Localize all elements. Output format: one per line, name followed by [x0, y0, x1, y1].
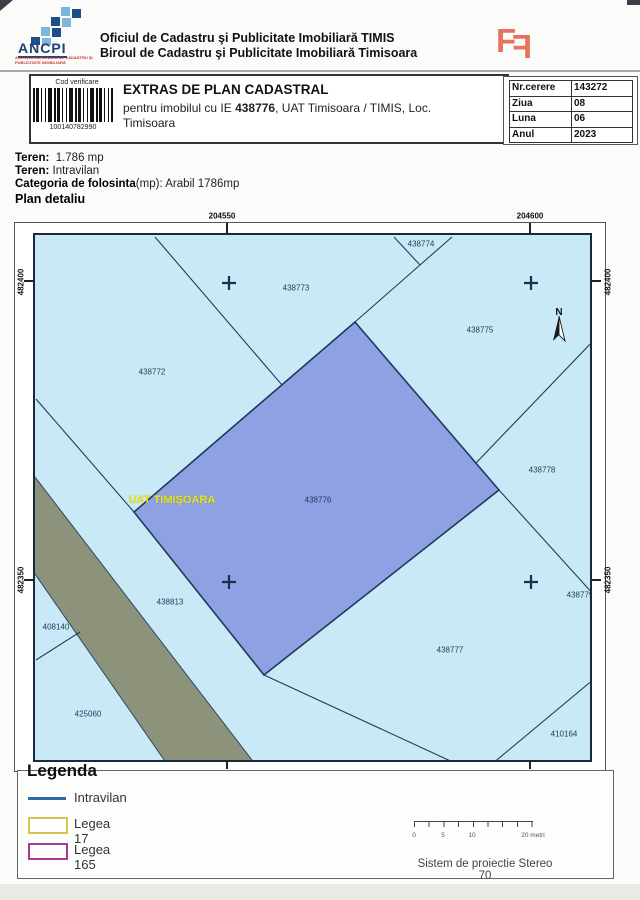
request-row-label: Ziua: [510, 97, 572, 112]
scale-label: 5: [441, 832, 445, 839]
grid-tick: [529, 223, 531, 233]
grid-tick: [592, 579, 601, 581]
plan-detaliu-title: Plan detaliu: [15, 192, 85, 206]
parcel-label-438813: 438813: [157, 598, 184, 607]
parcel-label-438774: 438774: [408, 240, 435, 249]
parcel-label-410164: 410164: [551, 730, 578, 739]
legend-swatch: [28, 817, 68, 834]
barcode-number: 100140782990: [33, 124, 113, 131]
scan-corner-mark: [627, 0, 640, 5]
grid-tick: [529, 760, 531, 769]
scale-label: 10: [468, 832, 475, 839]
page-footer-strip: [0, 884, 640, 900]
coordinate-label-right: 482400: [604, 269, 613, 296]
request-table-row: Ziua08: [510, 97, 632, 113]
grid-cross-icon: [524, 575, 538, 589]
parcel-label-438777: 438777: [437, 646, 464, 655]
grid-tick: [226, 760, 228, 769]
projection-note: Sistem de proiectie Stereo 70: [410, 858, 560, 882]
request-table-row: Nr.cerere143272: [510, 81, 632, 97]
ancpi-subtitle: AGENŢIA NAŢIONALĂ DE CADASTRU ŞI PUBLICI…: [15, 56, 95, 65]
legend-title: Legenda: [27, 761, 97, 781]
north-label: N: [555, 307, 562, 318]
parcel-label-438773: 438773: [283, 284, 310, 293]
request-row-label: Luna: [510, 112, 572, 127]
request-row-value: 08: [572, 97, 632, 112]
legend-item-label: Intravilan: [74, 790, 127, 805]
parcel-label-438778: 438778: [529, 466, 556, 475]
coordinate-label-top: 204600: [517, 212, 544, 221]
request-table-row: Luna06: [510, 112, 632, 128]
parcel-label-438775: 438775: [467, 326, 494, 335]
grid-cross-icon: [222, 276, 236, 290]
request-table: Nr.cerere143272Ziua08Luna06Anul2023: [509, 80, 633, 143]
coordinate-label-right: 482350: [604, 567, 613, 594]
legend-item-label: Legea 165: [74, 842, 110, 872]
coordinate-label-left: 482400: [17, 269, 26, 296]
uat-label: UAT TIMIŞOARA: [129, 494, 216, 506]
request-row-label: Nr.cerere: [510, 81, 572, 96]
teren-type-line: Teren: Intravilan: [15, 165, 99, 177]
coordinate-label-left: 482350: [17, 567, 26, 594]
legend-swatch: [28, 797, 66, 800]
parcel-label-425060: 425060: [75, 710, 102, 719]
legend-swatch: [28, 843, 68, 860]
teren-area-line: Teren: 1.786 mp: [15, 152, 104, 164]
north-arrow-icon: [553, 316, 565, 341]
grid-cross-icon: [524, 276, 538, 290]
scale-label: 0: [412, 832, 416, 839]
header-divider: [0, 70, 640, 72]
office-names: Oficiul de Cadastru şi Publicitate Imobi…: [100, 31, 417, 61]
scan-corner-mark: [0, 0, 13, 11]
parcel-label-408140: 408140: [43, 623, 70, 632]
efoto-logo-icon: FF: [496, 24, 532, 57]
subtitle-suffix: , UAT Timisoara / TIMIS, Loc.: [275, 101, 431, 115]
request-row-value: 2023: [572, 128, 632, 143]
office-line-2: Biroul de Cadastru şi Publicitate Imobil…: [100, 46, 417, 61]
ie-number: 438776: [235, 101, 275, 115]
grid-tick: [592, 280, 601, 282]
parcel-label-438772: 438772: [139, 368, 166, 377]
barcode: [33, 88, 113, 122]
request-row-value: 143272: [572, 81, 632, 96]
parcel-label-438779: 438779: [567, 591, 592, 600]
subtitle-prefix: pentru imobilul cu IE: [123, 101, 235, 115]
subtitle-line2: Timisoara: [123, 116, 175, 130]
teren-category-line: Categoria de folosinta(mp): Arabil 1786m…: [15, 178, 239, 190]
scale-label: 20 metri: [521, 832, 544, 839]
cod-verificare-label: Cod verificare: [42, 79, 112, 86]
office-line-1: Oficiul de Cadastru şi Publicitate Imobi…: [100, 31, 417, 46]
request-row-label: Anul: [510, 128, 572, 143]
scale-bar: [414, 821, 533, 827]
coordinate-label-top: 204550: [209, 212, 236, 221]
request-row-value: 06: [572, 112, 632, 127]
cadastral-map: N 43877243877343877443877543877643877743…: [33, 233, 592, 762]
parcel-label-438776: 438776: [305, 496, 332, 505]
request-table-row: Anul2023: [510, 128, 632, 143]
grid-tick: [226, 223, 228, 233]
document-subtitle: pentru imobilul cu IE 438776, UAT Timiso…: [123, 101, 503, 131]
document-title: EXTRAS DE PLAN CADASTRAL: [123, 82, 329, 97]
